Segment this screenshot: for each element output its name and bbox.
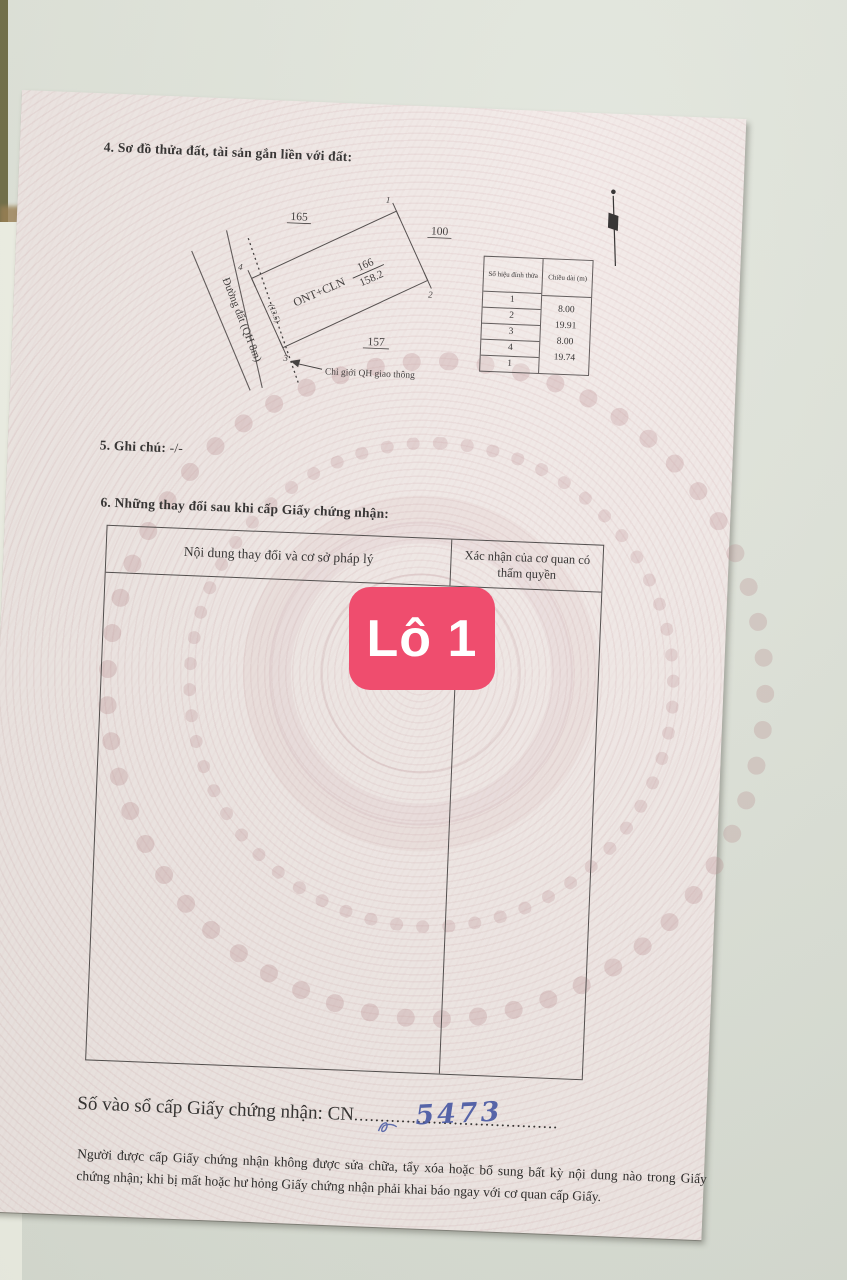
vertex-id-cell: 1 xyxy=(480,356,539,373)
vertex-tick-1 xyxy=(392,203,401,219)
vertex-tick-4 xyxy=(247,270,256,286)
register-label: Số vào sổ cấp Giấy chứng nhận: xyxy=(77,1093,323,1124)
vertex-id-header: Số hiệu đỉnh thửa xyxy=(483,257,543,294)
road-label: Đường đất (QH 8m) xyxy=(220,276,264,364)
vertex-id-column: Số hiệu đỉnh thửa 1 2 3 4 1 xyxy=(480,257,544,373)
parcel-info: ONT+CLN 166 158.2 xyxy=(289,253,390,317)
offset-label: (13.5) xyxy=(267,303,283,325)
edge-length-value: 8.00 xyxy=(541,336,590,348)
boundary-arrow-head xyxy=(290,359,300,367)
changes-table: Nội dung thay đổi và cơ sở pháp lý Xác n… xyxy=(85,525,604,1081)
footer-warning-text: Người được cấp Giấy chứng nhận không đượ… xyxy=(76,1143,707,1211)
section6-title: 6. Những thay đổi sau khi cấp Giấy chứng… xyxy=(100,494,389,522)
section5-label: 5. Ghi chú: xyxy=(100,437,167,455)
land-use-code: ONT+CLN xyxy=(291,274,348,309)
boundary-label: Chỉ giới QH giao thông xyxy=(325,367,416,381)
vertex-label-4: 4 xyxy=(238,262,243,272)
north-arrow-icon xyxy=(606,189,619,266)
handwritten-register-number: 5473 xyxy=(415,1096,504,1131)
edge-length-column: Chiều dài (m) 8.00 19.91 8.00 19.74 xyxy=(540,259,593,375)
ink-scribble xyxy=(376,1119,399,1136)
vertex-label-3: 3 xyxy=(282,353,288,363)
register-number-line: Số vào sổ cấp Giấy chứng nhận: CN.......… xyxy=(77,1093,559,1134)
edge-length-header: Chiều dài (m) xyxy=(543,259,593,298)
underline-157 xyxy=(363,348,389,349)
vertex-label-2: 2 xyxy=(428,289,433,299)
vertex-length-table: Số hiệu đỉnh thửa 1 2 3 4 1 Chiều dài (m… xyxy=(479,256,594,376)
vertex-label-1: 1 xyxy=(386,195,391,205)
photo-of-land-certificate: { "badge": { "label": "Lô 1" }, "doc": {… xyxy=(0,0,847,1280)
changes-table-body xyxy=(86,573,601,1080)
neighbor-parcel-right: 100 xyxy=(431,226,449,239)
boundary-arrow-line xyxy=(295,363,322,369)
neighbor-parcel-bottom: 157 xyxy=(367,336,385,349)
section5-title: 5. Ghi chú: -/- xyxy=(99,437,183,456)
edge-length-value: 19.91 xyxy=(541,320,590,332)
road-label-group: Đường đất (QH 8m) xyxy=(220,276,264,364)
register-prefix: CN xyxy=(327,1103,354,1125)
lot-number-badge: Lô 1 xyxy=(349,587,495,690)
neighbor-parcel-top: 165 xyxy=(290,211,308,224)
offset-label-group: (13.5) xyxy=(267,303,283,325)
section5-value: -/- xyxy=(169,440,183,456)
edge-length-value: 8.00 xyxy=(542,304,591,316)
vertex-tick-2 xyxy=(423,272,432,288)
authority-confirmation-header: Xác nhận của cơ quan có thẩm quyền xyxy=(451,540,603,592)
tile-grout-dark-strip xyxy=(0,0,8,236)
edge-length-value: 19.74 xyxy=(540,352,589,364)
